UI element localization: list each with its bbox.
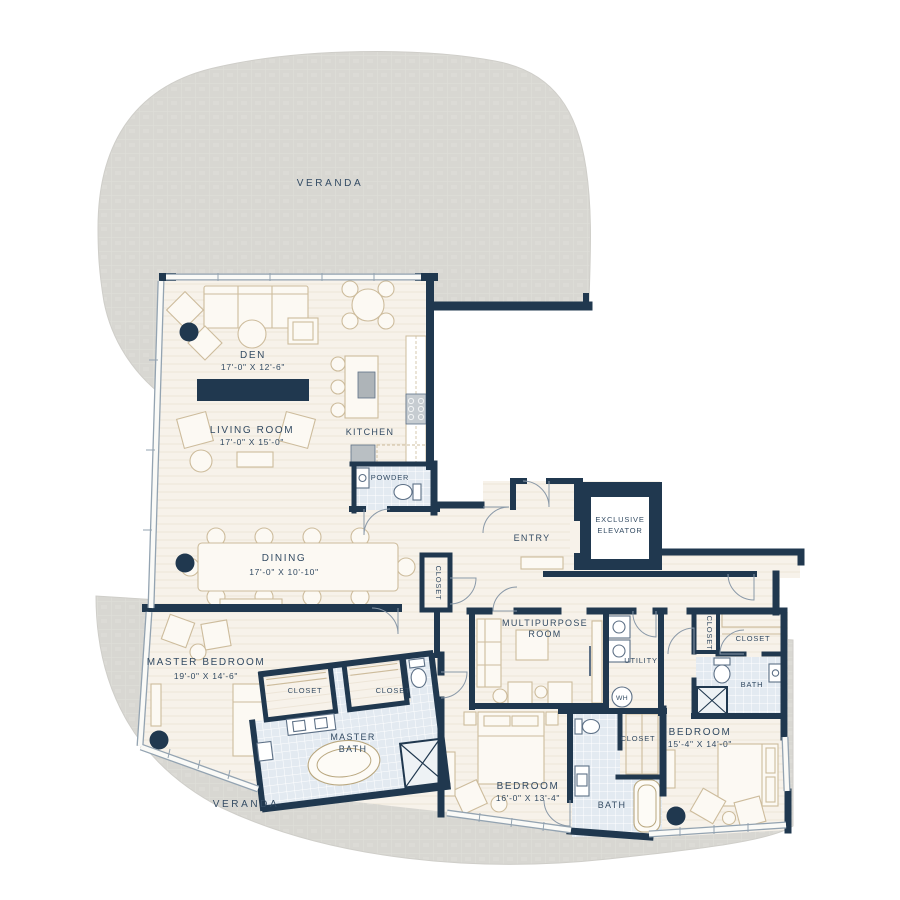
dining-label: DINING	[262, 553, 307, 564]
column	[176, 554, 195, 573]
bath-center-toilet-icon	[575, 719, 600, 734]
bedroom-right-bed	[718, 744, 778, 806]
bath-right-toilet-icon	[714, 658, 730, 683]
bedroom-right-dims: 15'-4" X 14'-0"	[668, 739, 732, 749]
den-armchair	[288, 318, 318, 344]
bedroom-center-dims: 16'-0" X 13'-4"	[496, 793, 560, 803]
closet-right-small-label: CLOSET	[705, 616, 714, 651]
bath-right-label: BATH	[741, 680, 764, 689]
powder-toilet-icon	[394, 484, 421, 500]
bath-center-label: BATH	[598, 800, 627, 810]
entry-console	[521, 557, 563, 569]
elevator-label-line1: EXCLUSIVE	[595, 515, 644, 524]
closet-right-label: CLOSET	[736, 634, 771, 643]
water-heater-label: WH	[616, 695, 628, 702]
master-bench	[151, 684, 161, 726]
elevator-label-line2: ELEVATOR	[597, 526, 642, 535]
water-heater-icon: WH	[612, 687, 632, 707]
living-bench	[237, 452, 273, 467]
master-bath-label-line1: MASTER	[330, 732, 375, 742]
column	[150, 731, 169, 750]
master-closet-left-label: CLOSET	[288, 686, 323, 695]
kitchen-island	[331, 356, 378, 418]
column	[667, 807, 686, 826]
column	[180, 323, 199, 342]
floor-plan: VERANDA	[0, 0, 900, 900]
hall-closet-label: CLOSET	[434, 566, 443, 601]
bedroom-center-label: BEDROOM	[497, 781, 560, 792]
powder-label: POWDER	[371, 473, 410, 482]
master-sink	[257, 741, 273, 761]
bath-center-tub-icon	[634, 780, 660, 832]
multipurpose-label-line2: ROOM	[528, 629, 561, 639]
den-label: DEN	[240, 350, 266, 361]
kitchen-label: KITCHEN	[346, 427, 395, 437]
stove-icon	[406, 394, 426, 424]
bedroom-right-dresser	[666, 750, 675, 788]
master-bedroom-dims: 19'-0" X 14'-6"	[174, 671, 238, 681]
den-ottoman	[238, 320, 266, 348]
master-bedroom-label: MASTER BEDROOM	[147, 657, 266, 668]
master-chair	[201, 620, 231, 650]
entry-label: ENTRY	[514, 533, 551, 543]
bedroom-right-table	[723, 812, 736, 825]
bath-right-shower-icon	[697, 687, 727, 714]
utility-label: UTILITY	[624, 656, 658, 665]
veranda-bottom-label: VERANDA	[213, 799, 280, 810]
dining-dims: 17'-0" X 10'-10"	[249, 567, 319, 577]
dishwasher-icon	[351, 445, 375, 464]
powder-sink-icon	[356, 468, 369, 488]
floor-plan-svg: VERANDA	[0, 0, 900, 900]
bedroom-center-bed	[464, 712, 558, 784]
veranda-top-label: VERANDA	[297, 178, 364, 189]
living-room-dims: 17'-0" X 15'-0"	[220, 437, 284, 447]
elevator-door	[570, 521, 580, 553]
bedroom-right-label: BEDROOM	[669, 727, 732, 738]
master-bath-label-line2: BATH	[339, 744, 368, 754]
den-dims: 17'-0" X 12'-6"	[221, 362, 285, 372]
closet-center-label: CLOSET	[621, 734, 656, 743]
bath-right-sink-icon	[769, 664, 782, 682]
media-console	[197, 379, 309, 401]
living-side-table	[190, 450, 212, 472]
master-closet-right-label: CLOSET	[376, 686, 411, 695]
living-room-label: LIVING ROOM	[210, 425, 294, 436]
multipurpose-label-line1: MULTIPURPOSE	[502, 618, 588, 628]
bath-center-vanity	[575, 766, 589, 796]
